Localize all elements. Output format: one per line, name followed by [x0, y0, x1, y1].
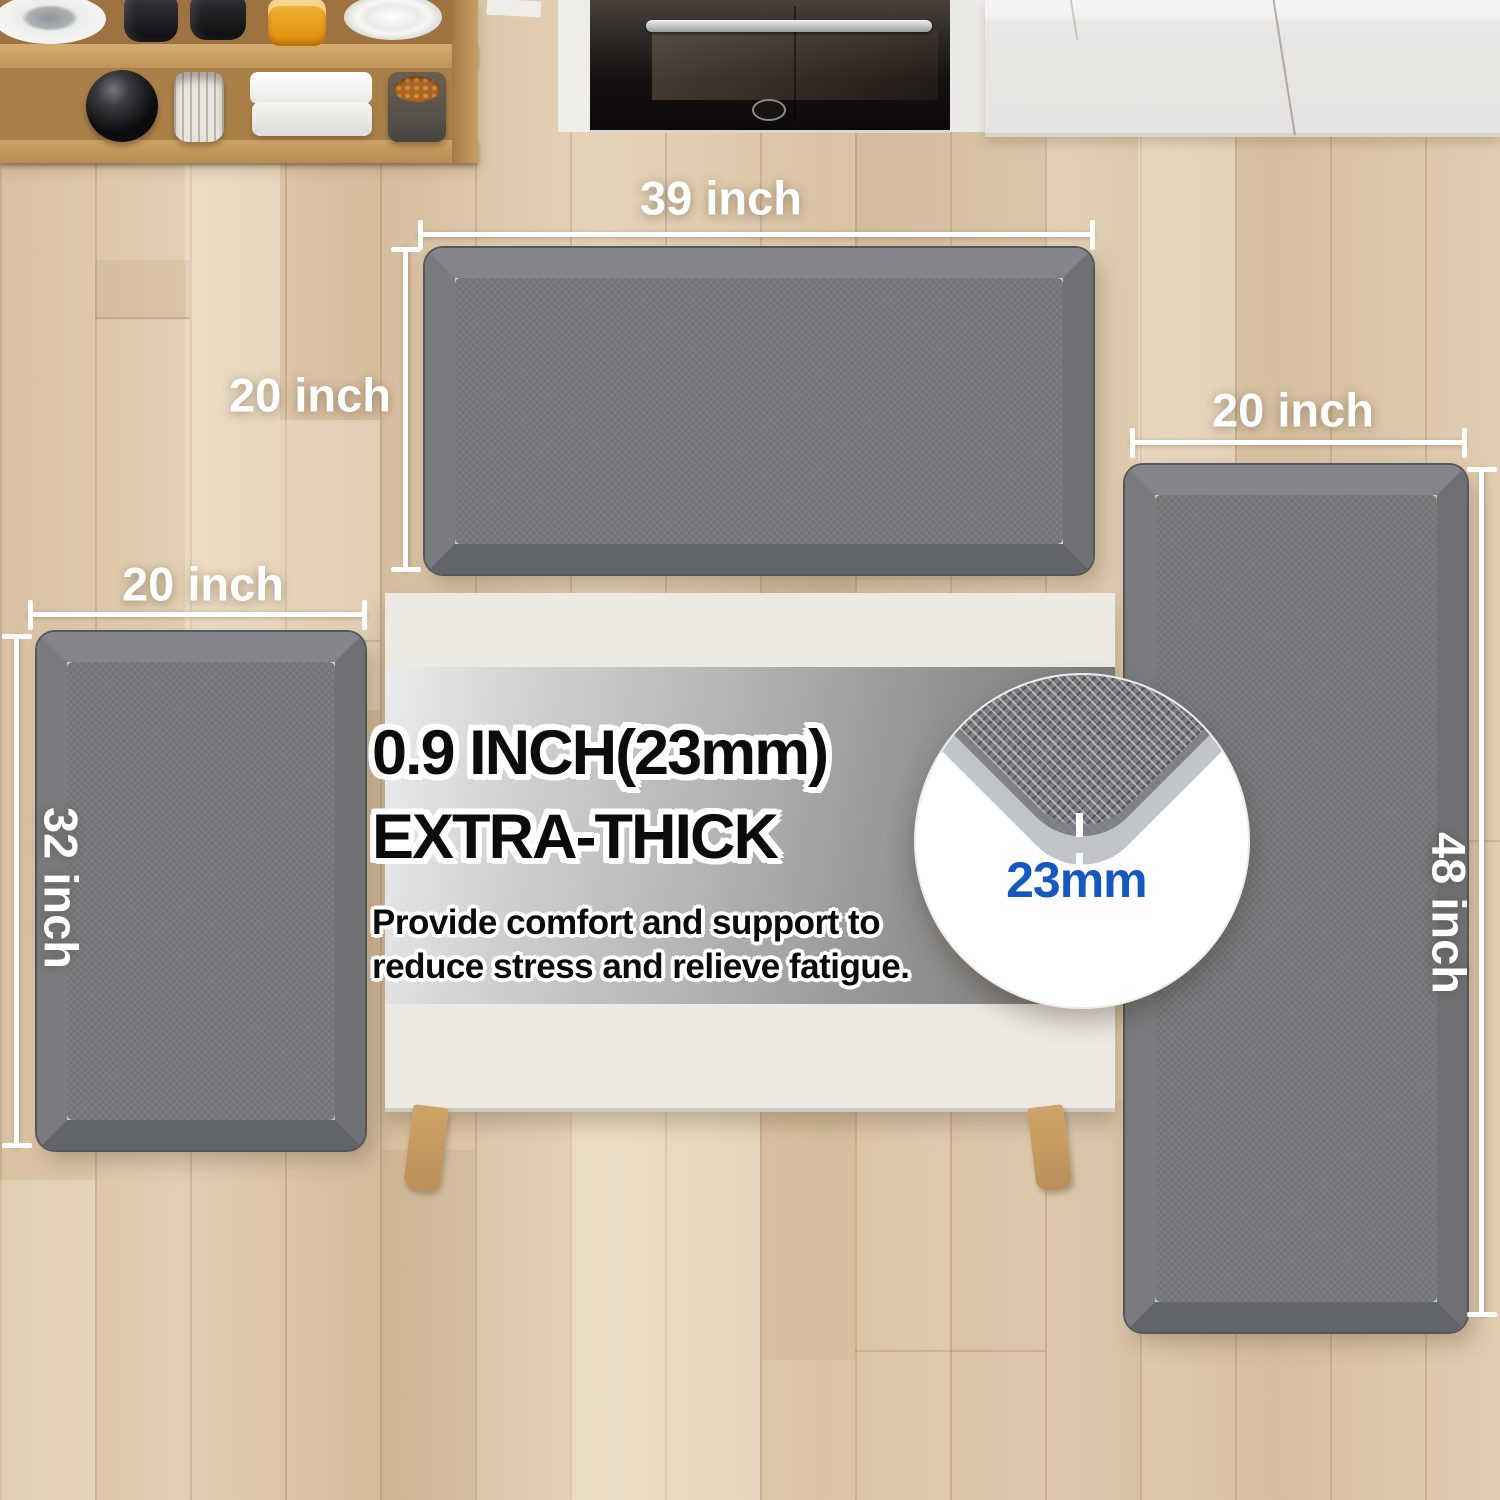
dimension-label-left-mat-length: 32 inch: [34, 807, 89, 969]
dimension-label-right-mat-width: 20 inch: [1212, 383, 1374, 438]
shelf-board: [0, 140, 478, 163]
oven-logo: [752, 99, 786, 121]
dimension-label-left-mat-width: 20 inch: [122, 557, 284, 612]
zoom-callout: 23mm: [914, 673, 1250, 1009]
dimension-tick: [1467, 1312, 1497, 1317]
floor-seam: [855, 1350, 1045, 1352]
dimension-label-top-mat-depth: 20 inch: [229, 368, 391, 423]
dimension-tick: [1090, 220, 1095, 250]
towel: [252, 102, 372, 136]
oven-handle: [646, 20, 932, 32]
nut-jar: [388, 72, 446, 142]
floor-seam: [95, 317, 190, 319]
dimension-tick: [28, 600, 33, 630]
product-scene: 0.9 INCH(23mm) EXTRA-THICK Provide comfo…: [0, 0, 1500, 1500]
dimension-line-top-mat-depth: [403, 247, 408, 572]
towel: [250, 72, 372, 104]
floor-plank: [570, 1100, 760, 1500]
folded-towels: [250, 72, 372, 136]
mat-top-surface: [455, 278, 1063, 544]
black-jar: [86, 70, 158, 142]
floor-plank: [0, 1180, 95, 1500]
benefit-text-line2: reduce stress and relieve fatigue.: [372, 949, 909, 984]
dimension-line-left-mat-length: [14, 634, 19, 1148]
shelf-board: [0, 44, 478, 68]
thickness-heading-line2: EXTRA-THICK: [372, 806, 777, 869]
nut-jar-lid: [394, 76, 440, 102]
wall-shelf: [0, 0, 478, 163]
cabinet-door-seam: [1070, 0, 1079, 40]
dimension-tick: [418, 220, 423, 250]
dimension-line-right-mat-length: [1479, 467, 1484, 1317]
dimension-tick: [2, 634, 32, 639]
dimension-line-top-mat-width: [418, 232, 1095, 237]
floor-plank: [95, 260, 190, 320]
cabinet-door-seam: [1272, 0, 1296, 135]
shelf-side-panel: [452, 0, 478, 163]
dimension-tick: [391, 247, 421, 252]
thickness-heading-line1: 0.9 INCH(23mm): [372, 722, 827, 785]
dimension-tick: [1467, 467, 1497, 472]
oven-frame-corner: [487, 0, 542, 17]
thickness-value-label: 23mm: [1006, 851, 1147, 909]
oven-frame: [950, 0, 988, 132]
ribbed-vase: [174, 72, 224, 142]
black-bottle: [190, 0, 246, 40]
oven: [558, 0, 988, 132]
floor-plank: [380, 1150, 475, 1500]
dimension-tick: [391, 567, 421, 572]
dimension-tick: [1130, 428, 1135, 458]
dimension-line-left-mat-width: [28, 612, 367, 617]
black-bottle: [124, 0, 178, 42]
juice-jar: [268, 0, 326, 46]
dimension-line-right-mat-width: [1130, 440, 1467, 445]
mat-left-surface: [67, 662, 335, 1120]
dimension-tick: [362, 600, 367, 630]
dimension-label-right-mat-length: 48 inch: [1422, 832, 1477, 994]
benefit-text-line1: Provide comfort and support to: [372, 905, 880, 940]
dimension-label-top-mat-width: 39 inch: [640, 171, 802, 226]
mat-top: [425, 248, 1093, 574]
white-cabinet: [985, 0, 1500, 137]
dimension-tick: [2, 1143, 32, 1148]
oven-frame: [558, 0, 590, 132]
dimension-tick: [1462, 428, 1467, 458]
